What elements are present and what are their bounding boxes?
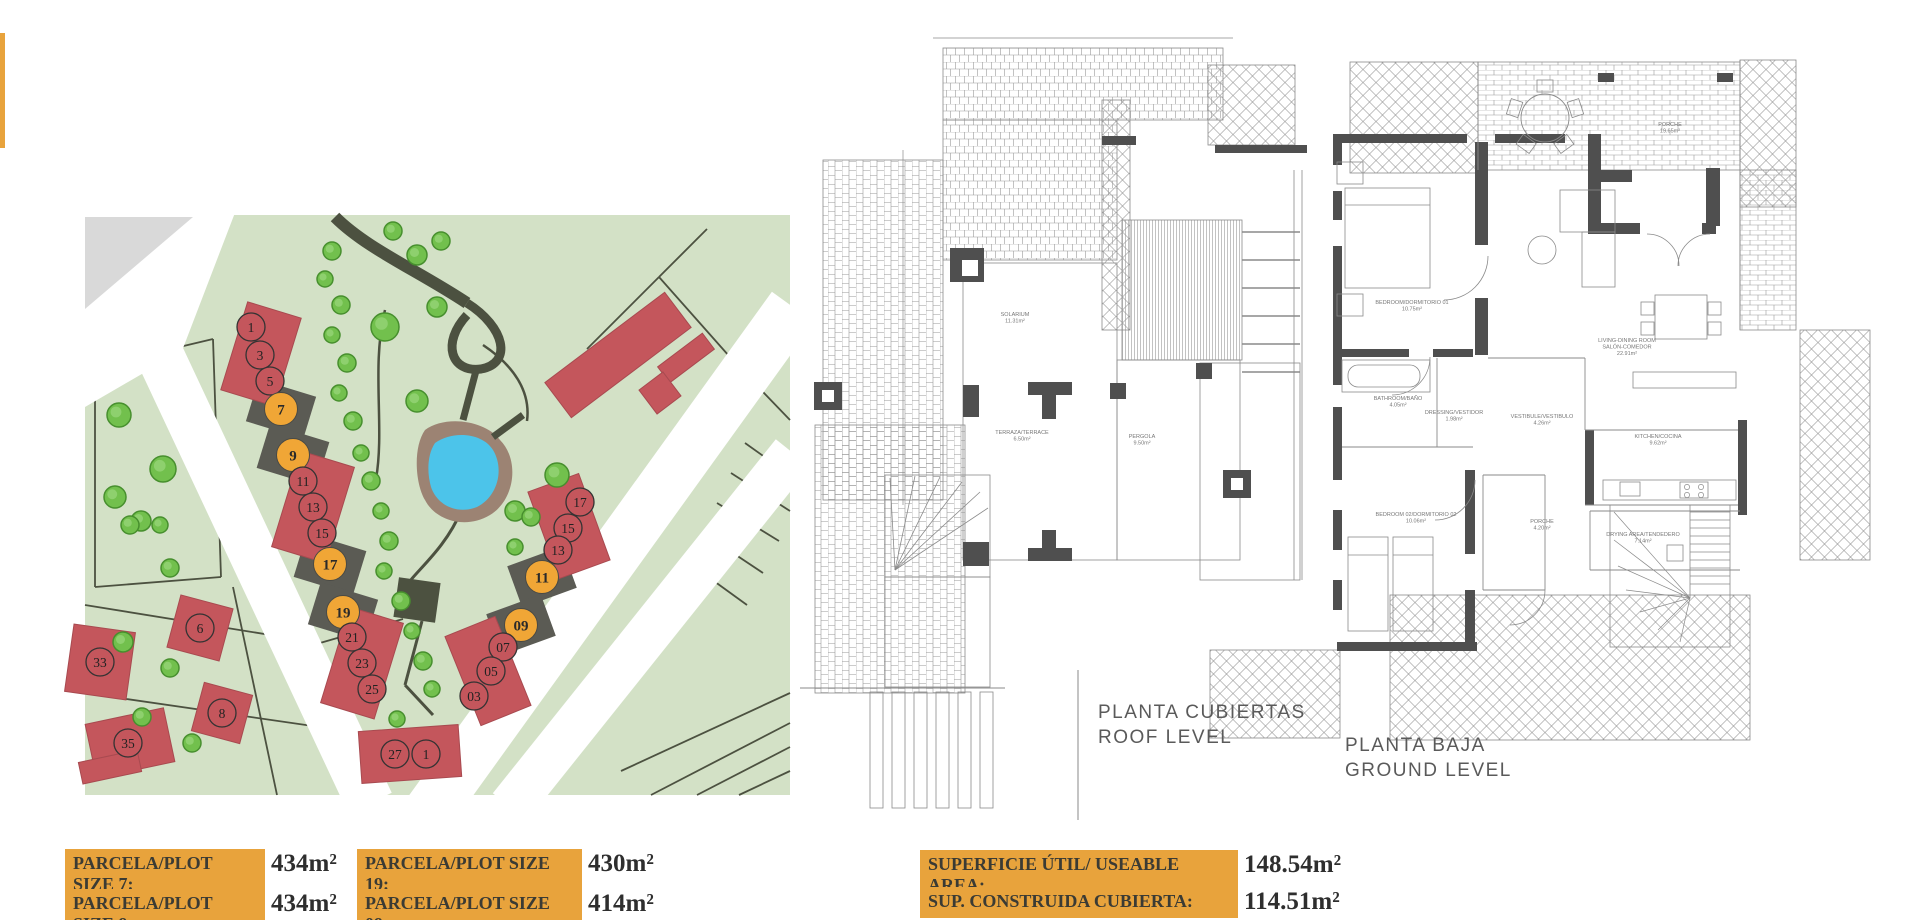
built-area-row: SUP. CONSTRUIDA CUBIERTA: 114.51m²	[920, 887, 1340, 918]
tree-icon	[133, 708, 151, 726]
room-label: DRESSING/VESTIDOR1.98m²	[1425, 410, 1483, 423]
ground-plan-title: PLANTA BAJA GROUND LEVEL	[1345, 733, 1512, 783]
roof-plan-title-line1: PLANTA CUBIERTAS	[1098, 700, 1306, 725]
svg-text:09: 09	[514, 619, 529, 635]
brochure-page: 1357911131517192123252711715131109070503…	[0, 0, 1920, 920]
svg-text:5: 5	[267, 374, 274, 389]
room-label: BEDROOM 02/DORMITORIO 0210.06m²	[1376, 512, 1457, 525]
svg-text:13: 13	[306, 500, 320, 515]
tree-icon	[371, 313, 399, 341]
tree-icon	[107, 403, 131, 427]
tree-icon	[522, 508, 540, 526]
svg-text:11: 11	[535, 571, 549, 587]
tree-icon	[407, 245, 427, 265]
built-area-label: SUP. CONSTRUIDA CUBIERTA:	[920, 887, 1238, 918]
svg-text:15: 15	[561, 521, 575, 536]
plot-marker-5: 5	[256, 367, 284, 395]
room-label: LIVING-DINING ROOMSALÓN-COMEDOR22.91m²	[1598, 338, 1656, 357]
plot-size-label-09: PARCELA/PLOT SIZE 09:	[357, 889, 582, 920]
tree-icon	[317, 271, 333, 287]
room-label: VESTIBULE/VESTIBULO4.26m²	[1511, 414, 1574, 427]
tree-icon	[353, 445, 369, 461]
plot-marker-25: 25	[358, 675, 386, 703]
plot-marker-1: 1	[412, 740, 440, 768]
plot-marker-13: 13	[299, 493, 327, 521]
plot-size-value-19: 430m²	[582, 849, 654, 878]
plot-marker-8: 8	[208, 699, 236, 727]
plot-marker-21: 21	[338, 623, 366, 651]
svg-text:03: 03	[467, 689, 481, 704]
ground-plan-title-line1: PLANTA BAJA	[1345, 733, 1512, 758]
tree-icon	[338, 354, 356, 372]
site-plan-map: 1357911131517192123252711715131109070503…	[85, 215, 790, 795]
tree-icon	[427, 297, 447, 317]
tree-icon	[121, 516, 139, 534]
tree-icon	[404, 623, 420, 639]
plot-marker-17: 17	[566, 488, 594, 516]
svg-text:07: 07	[496, 640, 510, 655]
plot-marker-11: 11	[289, 467, 317, 495]
plot-size-value-7: 434m²	[265, 849, 357, 878]
svg-text:17: 17	[573, 495, 587, 510]
tree-icon	[104, 486, 126, 508]
tree-icon	[324, 327, 340, 343]
plot-marker-27: 27	[381, 740, 409, 768]
svg-text:9: 9	[289, 449, 297, 465]
tree-icon	[545, 463, 569, 487]
plot-size-row-2: PARCELA/PLOT SIZE 9: 434m² PARCELA/PLOT …	[65, 889, 654, 920]
tree-icon	[344, 412, 362, 430]
tree-icon	[414, 652, 432, 670]
plot-marker-7: 7	[265, 393, 298, 426]
plot-marker-23: 23	[348, 649, 376, 677]
tree-icon	[362, 472, 380, 490]
ground-plan-title-line2: GROUND LEVEL	[1345, 758, 1512, 783]
tree-icon	[332, 296, 350, 314]
tree-icon	[152, 517, 168, 533]
page-edge-accent	[0, 33, 5, 148]
plot-marker-05: 05	[477, 657, 505, 685]
tree-icon	[323, 242, 341, 260]
tree-icon	[161, 659, 179, 677]
plot-marker-17: 17	[314, 548, 347, 581]
plot-size-label-9: PARCELA/PLOT SIZE 9:	[65, 889, 265, 920]
tree-icon	[183, 734, 201, 752]
svg-text:17: 17	[323, 558, 339, 574]
svg-text:23: 23	[355, 656, 369, 671]
ground-plan-drawing: BEDROOM/DORMITORIO 0110.75m²LIVING-DININ…	[1090, 50, 1880, 790]
svg-text:11: 11	[297, 474, 310, 489]
tree-icon	[161, 559, 179, 577]
plot-size-value-09: 414m²	[582, 889, 654, 918]
svg-text:35: 35	[121, 736, 135, 751]
roof-plan-title: PLANTA CUBIERTAS ROOF LEVEL	[1098, 700, 1306, 750]
tree-icon	[113, 632, 133, 652]
room-label: TERRAZA/TERRACE6.50m²	[995, 430, 1049, 443]
tree-icon	[432, 232, 450, 250]
svg-text:6: 6	[197, 621, 204, 636]
svg-text:25: 25	[365, 682, 379, 697]
built-area-value: 114.51m²	[1238, 887, 1340, 916]
plot-marker-3: 3	[246, 341, 274, 369]
plot-marker-1: 1	[237, 313, 265, 341]
plot-size-value-9: 434m²	[265, 889, 357, 918]
plot-marker-15: 15	[308, 519, 336, 547]
plot-marker-33: 33	[86, 648, 114, 676]
svg-text:21: 21	[345, 630, 359, 645]
tree-icon	[331, 385, 347, 401]
plot-marker-35: 35	[114, 729, 142, 757]
plot-marker-03: 03	[460, 682, 488, 710]
plot-marker-11: 11	[526, 561, 559, 594]
svg-text:05: 05	[484, 664, 498, 679]
room-label: PORCHE4.20m²	[1530, 519, 1554, 532]
svg-text:27: 27	[388, 747, 402, 762]
room-label: BEDROOM/DORMITORIO 0110.75m²	[1375, 300, 1448, 313]
roof-plan-title-line2: ROOF LEVEL	[1098, 725, 1306, 750]
room-label: BATHROOM/BAÑO4.05m²	[1374, 395, 1423, 409]
svg-text:13: 13	[551, 543, 565, 558]
tree-icon	[406, 390, 428, 412]
svg-text:33: 33	[93, 655, 107, 670]
tree-icon	[392, 592, 410, 610]
useable-area-value: 148.54m²	[1238, 850, 1341, 879]
svg-text:1: 1	[423, 747, 430, 762]
svg-text:8: 8	[219, 706, 226, 721]
tree-icon	[373, 503, 389, 519]
tree-icon	[376, 563, 392, 579]
tree-icon	[424, 681, 440, 697]
tree-icon	[380, 532, 398, 550]
plot-marker-6: 6	[186, 614, 214, 642]
svg-text:15: 15	[315, 526, 329, 541]
svg-text:19: 19	[336, 606, 351, 622]
tree-icon	[389, 711, 405, 727]
tree-icon	[384, 222, 402, 240]
svg-text:1: 1	[248, 320, 255, 335]
tree-icon	[507, 539, 523, 555]
tree-icon	[150, 456, 176, 482]
svg-text:7: 7	[277, 403, 285, 419]
plot-marker-13: 13	[544, 536, 572, 564]
room-label: SOLARIUM11.31m²	[1001, 312, 1030, 325]
room-label: KITCHEN/COCINA9.62m²	[1634, 434, 1681, 447]
room-label: PORCHE19.65m²	[1658, 122, 1682, 135]
svg-text:3: 3	[257, 348, 264, 363]
